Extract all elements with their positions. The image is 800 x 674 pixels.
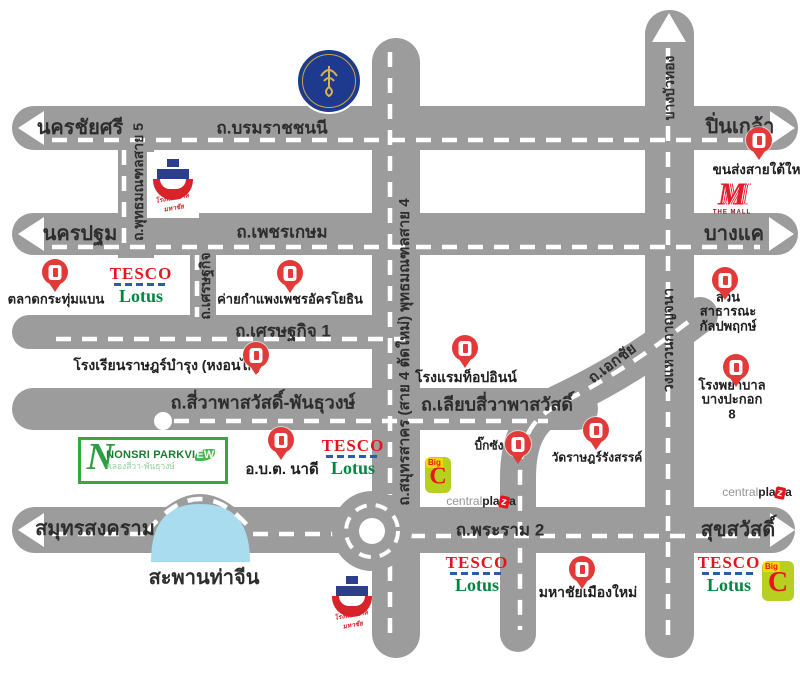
road-label-rama2: ถ.พระราม 2 [456,517,545,544]
roundabout-island [359,518,385,544]
road-label-phetkasem: ถ.เพชรเกษม [236,219,327,246]
road-label-samutsakhon-sai4: ถ.สมุทรสาคร (สาย 4 ตัดใหม่) พุทธมณฑลสาย … [392,198,416,505]
big-c-letter: C [768,567,788,599]
pin-bangpakok8-hospital [723,354,749,387]
road-label-setthakit-v: ถ.เศรษฐกิจ [195,252,217,319]
pin-southern-bus-terminal [746,127,772,160]
road-label-boromratchachonnani: ถ.บรมราชชนนี [216,115,327,142]
map-canvas: นครชัยศรี ถ.บรมราชชนนี ปิ่นเกล้า นครปฐม … [0,0,800,674]
big-c-letter: C [429,463,446,490]
the-mall-logo: M THE MALL [713,180,751,215]
dest-bang-khae: บางแค [704,217,764,249]
road-label-setthakit1: ถ.เศรษฐกิจ 1 [235,318,331,345]
tesco-lotus-logo: TESCO Lotus [108,265,174,305]
centralplaza-pla-text: pla [482,494,499,508]
centralplaza-central-text: central [446,494,482,508]
tesco-lotus-logo: TESCO Lotus [696,554,762,594]
mahidol-university-emblem-icon [296,48,362,114]
dest-suk-sawat: สุขสวัสดิ์ [701,513,776,545]
dest-nakhon-chai-si: นครชัยศรี [37,111,124,143]
nonsri-name: NONSRI PARKVIEW [106,449,215,461]
hospital-caption: โรงพยาบาลมหาชัย [327,606,378,634]
centralplaza-central-text: central [722,485,758,499]
pin-krathum-baen-market [42,259,68,292]
tesco-text: TESCO [108,265,174,282]
mahidol-crown-icon [314,63,344,99]
pin-army-camp [277,260,303,293]
place-school: โรงเรียนราษฎร์บำรุง (หงอนไก่) [73,355,260,377]
road-label-bang-bua-thong: บางบัวทอง [659,56,681,121]
nonsri-parkview-logo: N NONSRI PARKVIEW คลองสี่วา-พันธุวงษ์ [78,437,228,484]
the-mall-text: THE MALL [713,210,751,216]
pin-mahachai-mueang-mai [569,556,595,589]
road-label-liap-sivapha: ถ.เลียบสี่วาพาสวัสดิ์ [421,390,573,419]
hospital-caption: โรงพยาบาลมหาชัย [148,189,199,217]
big-c-logo: Big C [762,561,794,601]
centralplaza-pla-text: pla [758,485,775,499]
project-entrance-dot-icon [154,412,172,430]
centralplaza-logo: centralplaza [446,494,516,508]
road-setthakit1 [12,315,420,349]
nonsri-name-prefix: NONSRI PARKVI [106,449,195,461]
road-label-kanchanaphisek: วงแหวนกาญจนา [658,288,680,392]
road-label-sivapha: ถ.สี่วาพาสวัสดิ์-พันธุวงษ์ [171,388,356,417]
pin-school [243,342,269,375]
pin-nadi-sao [268,427,294,460]
bridge-label: สะพานท่าจีน [149,561,260,593]
lotus-text: Lotus [320,459,386,477]
the-mall-m-icon: M [713,180,751,207]
pin-wat-rat-rangsan [583,417,609,450]
pin-kalapapruek-park [712,267,738,300]
centralplaza-logo: centralplaza [722,485,792,499]
pin-top-inn-hotel [452,335,478,368]
dest-nakhon-pathom: นครปฐม [43,217,118,249]
tesco-text: TESCO [320,437,386,454]
tesco-text: TESCO [696,554,762,571]
pin-big-sang [505,431,531,464]
lotus-text: Lotus [108,287,174,305]
centralplaza-a-text: a [785,485,792,499]
centralplaza-a-text: a [509,494,516,508]
lotus-text: Lotus [696,576,762,594]
dest-samut-songkhram: สมุทรสงคราม [35,512,155,544]
mahachai-hospital-logo-icon: โรงพยาบาลมหาชัย [149,157,197,213]
nonsri-subtitle: คลองสี่วา-พันธุวงษ์ [106,461,215,471]
mahachai-hospital-logo-icon: โรงพยาบาลมหาชัย [328,574,376,630]
nonsri-leaf-icon: EW [195,449,215,461]
tesco-text: TESCO [444,554,510,571]
tesco-lotus-logo: TESCO Lotus [444,554,510,594]
big-c-logo: Big C [425,457,451,493]
tesco-lotus-logo: TESCO Lotus [320,437,386,477]
place-big-sang: บิ๊กซัง [475,437,504,456]
lotus-text: Lotus [444,576,510,594]
